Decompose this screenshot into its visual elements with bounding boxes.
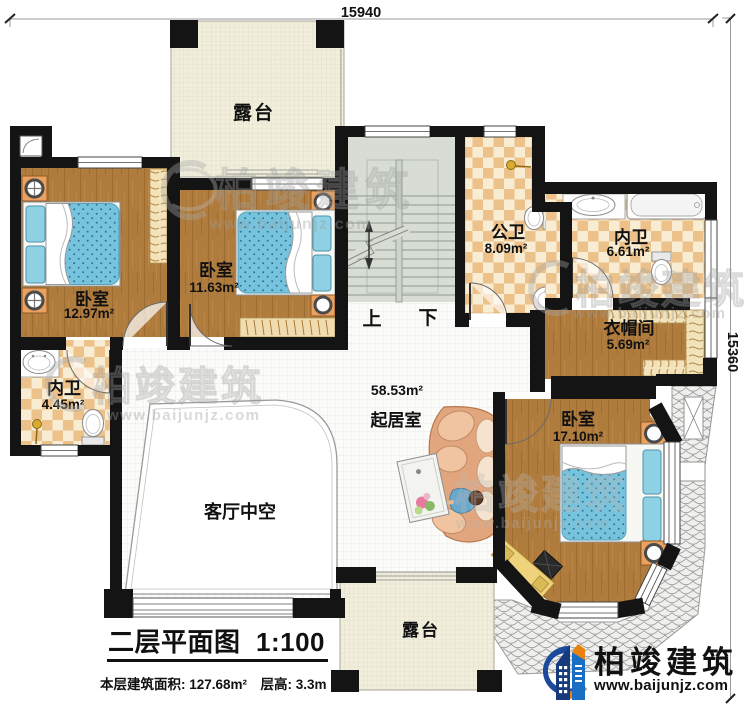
- svg-text:露台: 露台: [233, 101, 275, 124]
- svg-text:柏竣建筑: 柏竣建筑: [215, 166, 415, 215]
- svg-text:www.baijunjz.com: www.baijunjz.com: [106, 407, 260, 424]
- svg-text:5.69m²: 5.69m²: [607, 337, 650, 352]
- svg-text:客厅中空: 客厅中空: [204, 501, 276, 522]
- svg-text:8.09m²: 8.09m²: [485, 241, 528, 256]
- svg-text:11.63m²: 11.63m²: [189, 280, 239, 295]
- svg-text:15940: 15940: [341, 5, 381, 21]
- svg-text:柏竣建筑: 柏竣建筑: [92, 365, 264, 409]
- svg-text:58.53m²: 58.53m²: [371, 382, 423, 398]
- svg-text:15360: 15360: [724, 332, 740, 372]
- svg-text:www.baijunjz.com: www.baijunjz.com: [455, 515, 609, 532]
- svg-text:17.10m²: 17.10m²: [553, 429, 604, 444]
- svg-text:卧室: 卧室: [199, 260, 233, 280]
- svg-text:柏竣建筑: 柏竣建筑: [594, 645, 738, 680]
- svg-text:www.baijunjz.com: www.baijunjz.com: [572, 305, 726, 322]
- svg-text:1:100: 1:100: [256, 627, 325, 657]
- svg-text:上: 上: [362, 308, 381, 330]
- svg-text:12.97m²: 12.97m²: [64, 306, 115, 321]
- svg-text:本层建筑面积: 127.68m² 层高: 3.3m: 本层建筑面积: 127.68m² 层高: 3.3m: [100, 676, 327, 692]
- svg-text:6.61m²: 6.61m²: [607, 244, 650, 259]
- svg-text:www.baijunjz.com: www.baijunjz.com: [209, 216, 372, 233]
- svg-text:起居室: 起居室: [370, 410, 422, 430]
- svg-text:二层平面图: 二层平面图: [108, 627, 241, 657]
- svg-text:www.baijunjz.com: www.baijunjz.com: [593, 677, 728, 694]
- svg-text:卧室: 卧室: [561, 409, 595, 429]
- svg-text:公卫: 公卫: [491, 223, 525, 242]
- svg-text:下: 下: [418, 308, 437, 329]
- svg-text:露台: 露台: [402, 620, 440, 640]
- svg-text:柏竣建筑: 柏竣建筑: [455, 473, 627, 517]
